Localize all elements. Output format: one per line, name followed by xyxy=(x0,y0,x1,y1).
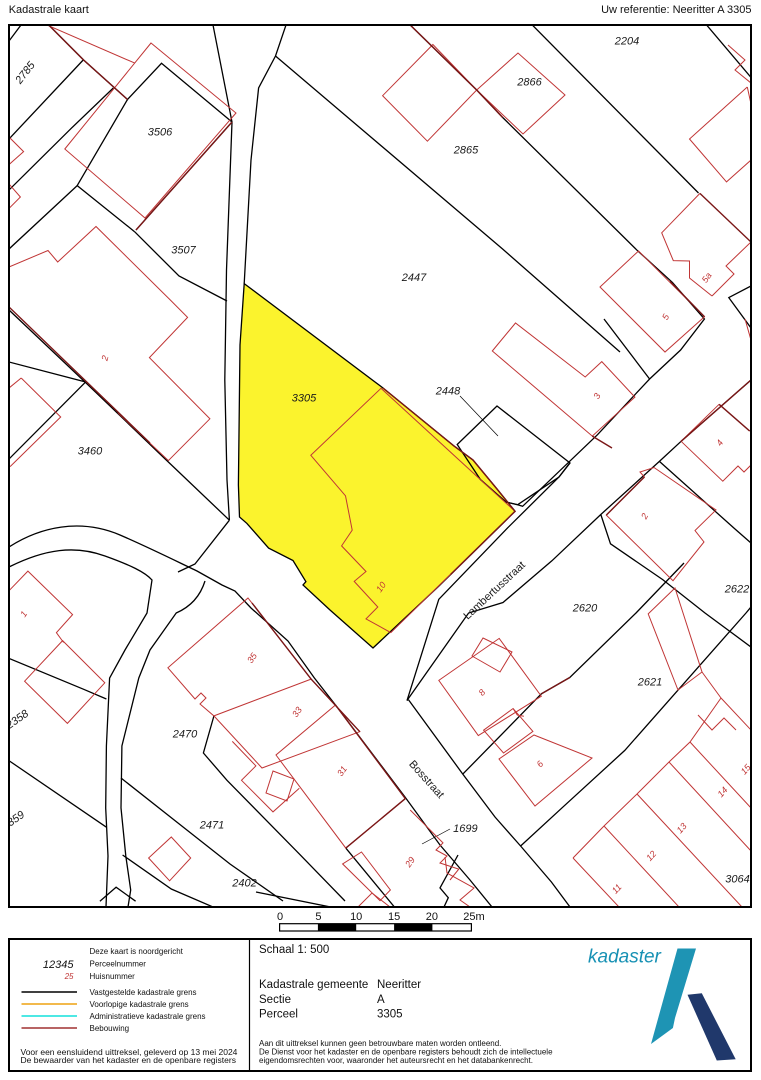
svg-text:15: 15 xyxy=(388,911,400,923)
svg-text:2402: 2402 xyxy=(231,878,256,890)
svg-text:3064: 3064 xyxy=(725,874,749,886)
svg-text:Schaal 1: 500: Schaal 1: 500 xyxy=(259,944,329,956)
svg-text:1699: 1699 xyxy=(453,823,477,835)
svg-text:2866: 2866 xyxy=(516,77,542,89)
svg-text:3305: 3305 xyxy=(377,1009,403,1021)
svg-text:Vastgestelde kadastrale grens: Vastgestelde kadastrale grens xyxy=(90,988,197,997)
svg-text:3305: 3305 xyxy=(292,393,317,405)
svg-text:Voorlopige kadastrale grens: Voorlopige kadastrale grens xyxy=(90,1000,189,1009)
svg-text:De bewaarder van het kadaster: De bewaarder van het kadaster en de open… xyxy=(21,1055,236,1065)
svg-text:2621: 2621 xyxy=(637,677,662,689)
svg-text:Sectie: Sectie xyxy=(259,994,291,1006)
svg-text:2204: 2204 xyxy=(614,36,639,48)
svg-text:Huisnummer: Huisnummer xyxy=(90,972,136,981)
svg-text:0: 0 xyxy=(277,911,283,923)
svg-text:Kadastrale kaart: Kadastrale kaart xyxy=(9,4,89,16)
svg-text:3507: 3507 xyxy=(171,245,196,257)
svg-text:2865: 2865 xyxy=(453,145,479,157)
svg-text:25m: 25m xyxy=(463,911,484,923)
svg-text:2622: 2622 xyxy=(724,584,749,596)
svg-text:2448: 2448 xyxy=(435,386,461,398)
svg-text:Deze kaart is noordgericht: Deze kaart is noordgericht xyxy=(90,947,184,956)
svg-text:3460: 3460 xyxy=(78,446,103,458)
svg-text:2447: 2447 xyxy=(401,272,427,284)
svg-text:eigendomsrechten voor, waarond: eigendomsrechten voor, waaronder het aut… xyxy=(259,1056,533,1065)
svg-text:Administratieve kadastrale gre: Administratieve kadastrale grens xyxy=(90,1012,206,1021)
svg-text:Perceelnummer: Perceelnummer xyxy=(90,960,147,969)
svg-text:Neeritter: Neeritter xyxy=(377,979,421,991)
svg-text:2620: 2620 xyxy=(572,603,598,615)
svg-text:12345: 12345 xyxy=(43,959,74,971)
svg-text:Uw referentie: Neeritter A 330: Uw referentie: Neeritter A 3305 xyxy=(601,4,751,16)
svg-text:3506: 3506 xyxy=(148,127,173,139)
svg-text:10: 10 xyxy=(350,911,362,923)
svg-text:A: A xyxy=(377,994,385,1006)
svg-text:25: 25 xyxy=(64,972,74,981)
svg-text:Perceel: Perceel xyxy=(259,1009,298,1021)
svg-text:kadaster: kadaster xyxy=(588,947,662,968)
svg-text:Kadastrale gemeente: Kadastrale gemeente xyxy=(259,979,368,991)
svg-text:5: 5 xyxy=(315,911,321,923)
svg-text:20: 20 xyxy=(426,911,438,923)
svg-text:2471: 2471 xyxy=(199,820,224,832)
svg-text:Bebouwing: Bebouwing xyxy=(90,1024,130,1033)
svg-text:2470: 2470 xyxy=(172,729,198,741)
